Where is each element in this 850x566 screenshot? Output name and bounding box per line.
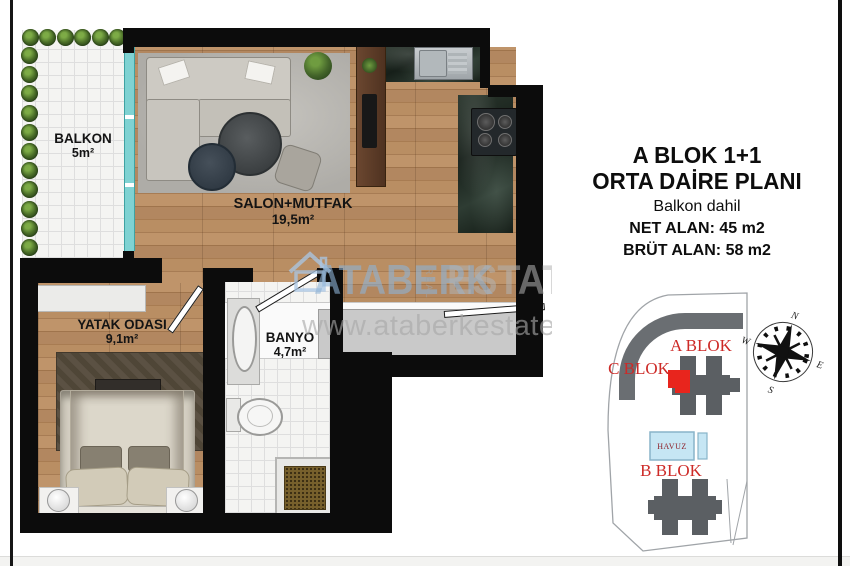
- right-frame-line: [838, 0, 842, 566]
- wall: [20, 258, 162, 283]
- label-c-blok: C BLOK: [608, 359, 671, 378]
- stove-burner: [498, 133, 512, 147]
- room-name: BANYO: [237, 330, 343, 345]
- room-name: SALON+MUTFAK: [216, 196, 370, 212]
- wall: [330, 352, 392, 533]
- room-area: 4,7m²: [237, 345, 343, 359]
- wall: [20, 280, 38, 533]
- island-tv: [362, 94, 377, 148]
- sink-basin: [419, 50, 447, 77]
- compass-south: S: [766, 385, 774, 397]
- shower-floor: [284, 466, 326, 510]
- room-label-salon: SALON+MUTFAK 19,5m²: [216, 196, 370, 227]
- label-b-blok: B BLOK: [640, 461, 703, 480]
- net-area: NET ALAN: 45 m2: [556, 220, 838, 238]
- wall: [480, 28, 490, 88]
- wall: [390, 355, 543, 377]
- wall: [225, 268, 253, 282]
- island-plant: [362, 58, 377, 73]
- pool-label: HAVUZ: [657, 442, 686, 451]
- stove-burner: [478, 133, 492, 147]
- plan-title-line1: A BLOK 1+1: [560, 143, 834, 169]
- info-panel: A BLOK 1+1 ORTA DAİRE PLANI Balkon dahil…: [556, 143, 838, 260]
- glass-cap: [123, 251, 134, 258]
- floor-plan-page: BALKON 5m² SALON+MUTFAK 19,5m² YATAK ODA…: [0, 0, 850, 566]
- lamp: [47, 489, 70, 512]
- room-name: YATAK ODASI: [64, 317, 179, 332]
- stove: [471, 108, 517, 156]
- bottom-strip: [0, 556, 850, 566]
- wall: [203, 268, 225, 533]
- toilet-bowl-inner: [247, 405, 273, 427]
- room-name: BALKON: [35, 131, 131, 146]
- room-area: 5m²: [35, 146, 131, 160]
- room-area: 19,5m²: [216, 212, 370, 227]
- plan-title-line2: ORTA DAİRE PLANI: [560, 169, 834, 195]
- compass-east: E: [814, 359, 824, 372]
- stove-burner: [498, 115, 512, 129]
- salon-plant: [304, 52, 332, 80]
- room-label-banyo: BANYO 4,7m²: [237, 330, 343, 359]
- room-label-balkon: BALKON 5m²: [35, 131, 131, 160]
- left-frame-line: [10, 0, 13, 566]
- wardrobe: [36, 285, 146, 312]
- site-plan: HAVUZ A BLOK C BLOK B BLOK N S E W: [585, 283, 850, 566]
- room-label-yatak-odasi: YATAK ODASI 9,1m²: [64, 317, 179, 346]
- pool-small: [698, 433, 707, 459]
- coffee-table-small: [188, 143, 236, 191]
- wall: [123, 28, 488, 47]
- label-a-blok: A BLOK: [670, 336, 733, 355]
- room-area: 9,1m²: [64, 332, 179, 346]
- sink-drainer: [448, 51, 467, 74]
- stove-burner: [477, 113, 495, 131]
- lamp: [175, 489, 198, 512]
- glass-cap: [123, 47, 134, 53]
- wall: [516, 85, 543, 377]
- gross-area: BRÜT ALAN: 58 m2: [556, 242, 838, 260]
- compass-north: N: [789, 310, 801, 323]
- plan-subtitle: Balkon dahil: [556, 198, 838, 216]
